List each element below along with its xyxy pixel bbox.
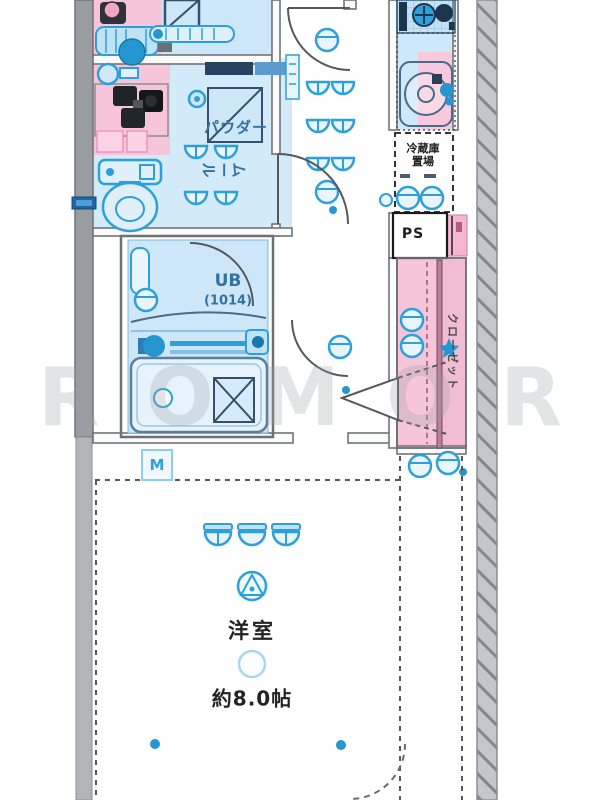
burner-icon — [435, 4, 453, 22]
small-label-tag — [286, 55, 299, 99]
hanger-symbol — [401, 309, 423, 331]
ceiling-light-icon — [272, 524, 300, 545]
left-wall-upper — [75, 0, 93, 437]
western-room-size: 約8.0帖 — [212, 683, 292, 712]
bathtub-icon — [131, 358, 267, 432]
bath-fan-icon — [135, 289, 157, 311]
kitchen-sink-icon — [98, 64, 118, 84]
cabinet-icon — [97, 131, 123, 152]
ceiling-light-icon — [204, 524, 232, 545]
light-symbol — [316, 29, 338, 51]
unit-bath-label: UB — [215, 271, 242, 291]
toilet-icon — [99, 160, 161, 231]
vent-circle-icon — [238, 572, 266, 600]
ps-side-box — [445, 215, 467, 256]
faucet-icon — [440, 83, 454, 97]
light-symbol — [421, 187, 443, 209]
floor-plan: R O M O R パウダー ルーム UB (1014) 冷蔵庫 置場 PS ク… — [0, 0, 600, 800]
light-symbol — [329, 336, 351, 358]
hanger-symbol — [401, 335, 423, 357]
unit-bath — [121, 236, 273, 437]
powder-room-label-line2: ルーム — [201, 160, 246, 181]
unit-bath-size: (1014) — [204, 294, 252, 309]
blue-dot — [329, 206, 337, 214]
left-wall-lower — [76, 437, 92, 800]
drain-icon — [154, 389, 172, 407]
western-room-label: 洋室 — [228, 615, 276, 645]
blue-dot — [342, 386, 350, 394]
blue-dot — [336, 740, 346, 750]
vent-icon — [72, 197, 96, 209]
bath-shelf-icon — [131, 248, 149, 294]
cabinet-icon — [127, 131, 147, 152]
blue-dot — [150, 739, 160, 749]
floor-plan-drawing — [0, 0, 600, 800]
powder-room-label-line1: パウダー — [204, 117, 268, 138]
small-symbol — [380, 194, 392, 206]
light-symbol — [397, 187, 419, 209]
ceiling-light-icon — [238, 524, 266, 545]
closet-label: クローゼット — [445, 313, 461, 391]
refrigerator-label-line2: 置場 — [412, 153, 434, 169]
right-hatched-wall — [477, 0, 497, 800]
pipe-space-label: PS — [402, 226, 424, 242]
meter-box-badge: M — [141, 449, 173, 481]
mirror-icon — [205, 62, 253, 75]
